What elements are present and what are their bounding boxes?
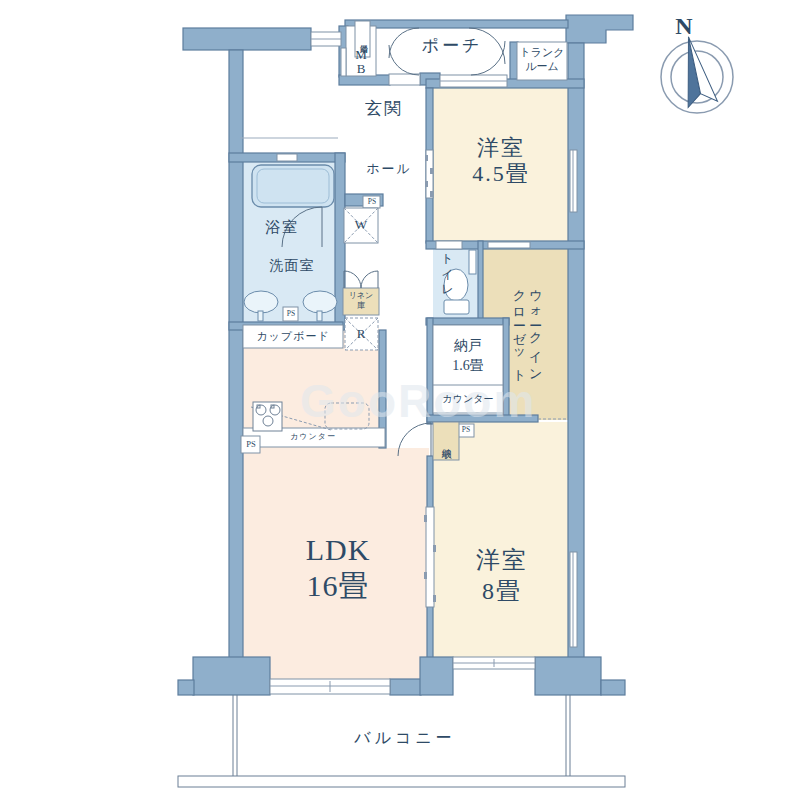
porch-door-arc-2: [389, 45, 419, 75]
pillar-bottom-left-foot: [178, 680, 194, 695]
room45-label: 洋室 4.5畳: [472, 135, 530, 188]
wall-top-outer: [345, 20, 568, 28]
ps-label-hall: PS: [368, 197, 376, 206]
bath-label: 浴室: [265, 218, 299, 237]
ps-label-room8: PS: [462, 425, 470, 434]
linen-label: リネン 庫: [349, 291, 374, 310]
bathtub: [252, 165, 334, 207]
balcony-railing: [178, 776, 625, 787]
kitchen-counter-label: カウンター: [290, 432, 336, 442]
ps-label-washroom: PS: [287, 309, 295, 318]
trunk-room-label: トランク ルーム: [519, 46, 564, 74]
washroom-label: 洗面室: [270, 257, 315, 275]
wall-left-outer: [229, 50, 243, 658]
pillar-bottom-right: [535, 657, 601, 695]
partition-ldk-room8: [426, 507, 434, 607]
wall-toilet-bottom: [426, 318, 509, 325]
ldk-label: LDK 16畳: [306, 532, 371, 604]
porch-door-arc-1: [389, 28, 419, 58]
pillar-top-right: [566, 15, 633, 43]
toilet-label: トイレ: [440, 245, 455, 292]
wall-ldk-bottom: [390, 679, 421, 695]
ps-label-kitchen: PS: [246, 439, 255, 450]
stove: [253, 402, 282, 431]
window-mb-slit: [341, 48, 346, 76]
mb-label: M B: [355, 48, 367, 75]
cupboard-label: カップボード: [256, 330, 329, 344]
balcony-label: バルコニー: [354, 728, 456, 748]
pillar-top-left: [183, 28, 311, 50]
floor-plan: GooRoom: [0, 0, 800, 800]
fridge-label: R: [357, 326, 366, 342]
wall-bottom-center: [420, 657, 453, 695]
room8-label: 洋室 8畳: [476, 545, 528, 607]
pillar-bottom-left: [193, 657, 270, 695]
washer-label: W: [355, 217, 367, 233]
compass: [661, 34, 733, 113]
linen-door-arc-left: [344, 271, 361, 288]
wic-label: ウォークイン クローゼット: [511, 281, 544, 379]
pillar-bottom-right-foot: [601, 680, 625, 695]
porch-label: ポーチ: [422, 35, 483, 56]
storeroom-label: 納戸 1.6畳: [452, 336, 484, 375]
wall-toilet-wic: [478, 241, 483, 325]
door-wic: [488, 242, 530, 248]
entrance-door-opening: [389, 74, 420, 85]
storeroom-counter-label: カウンター: [443, 393, 494, 406]
compass-n-label: N: [675, 11, 692, 41]
entrance-label: 玄関: [365, 98, 403, 119]
linen-door-arc-right: [361, 271, 378, 288]
hall-label: ホール: [366, 161, 412, 177]
window-bath: [277, 154, 297, 161]
